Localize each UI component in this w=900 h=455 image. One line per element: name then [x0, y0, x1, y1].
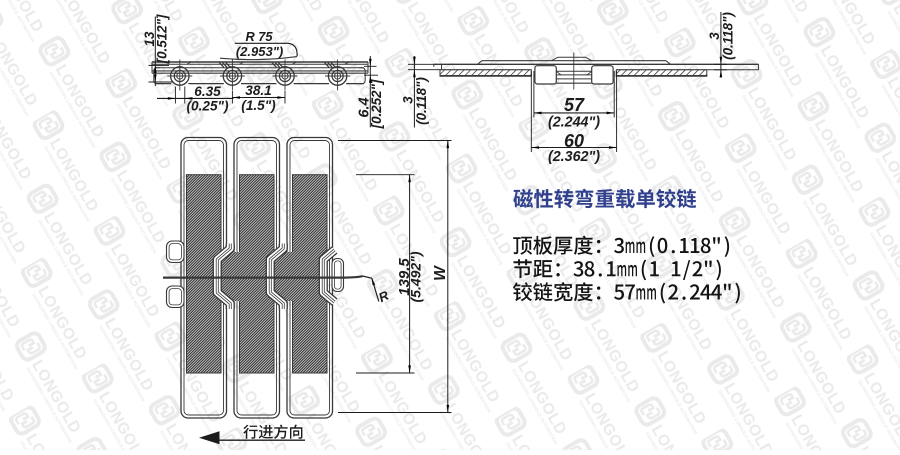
svg-text:38.1: 38.1 [245, 83, 271, 98]
svg-text:57: 57 [564, 95, 585, 115]
svg-text:(2.244"): (2.244") [548, 115, 600, 131]
svg-text:(5.492"): (5.492") [408, 251, 424, 302]
svg-text:[0.252"]: [0.252"] [369, 79, 384, 129]
svg-text:R 75: R 75 [245, 29, 273, 44]
svg-text:6.35: 6.35 [194, 84, 221, 99]
svg-text:(1.5"): (1.5") [241, 98, 276, 113]
svg-text:(2.953"): (2.953") [236, 44, 283, 59]
svg-text:[0.512"]: [0.512"] [155, 14, 170, 64]
svg-text:(0.25"): (0.25") [187, 99, 229, 114]
svg-text:(0.118"): (0.118") [720, 12, 735, 60]
svg-text:(2.362"): (2.362") [548, 149, 600, 165]
svg-text:60: 60 [564, 131, 584, 151]
svg-text:W: W [432, 265, 449, 281]
svg-text:(0.118"): (0.118") [414, 77, 429, 125]
